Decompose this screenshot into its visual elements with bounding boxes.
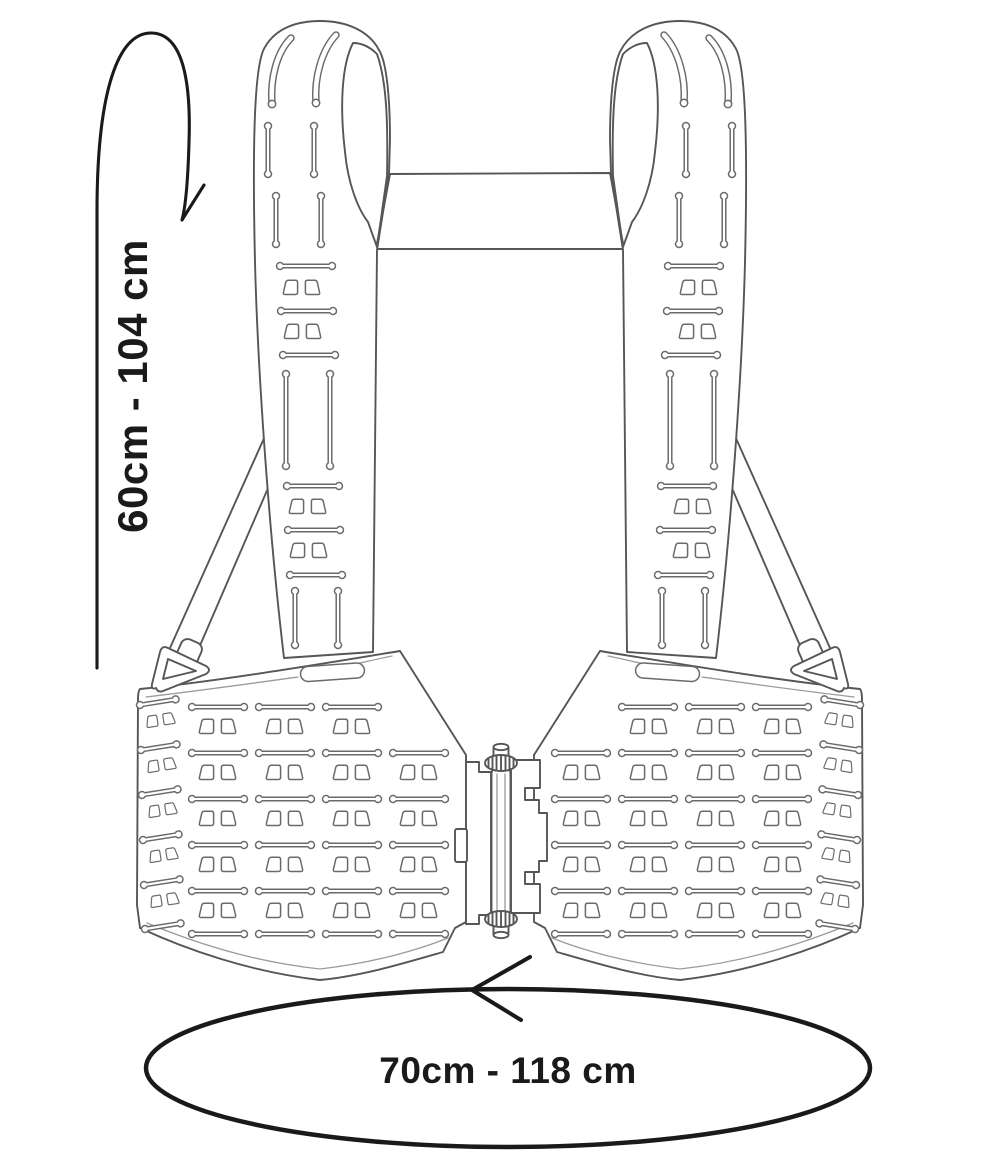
harness-right-half <box>534 21 864 980</box>
horizontal-dimension-label: 70cm - 118 cm <box>379 1050 636 1092</box>
back-yoke <box>349 173 652 249</box>
illustration-page: 60cm - 104 cm 70cm - 118 cm <box>0 0 1000 1160</box>
clip-top-knob <box>485 744 517 771</box>
clip-bottom-knob <box>485 911 517 938</box>
front-closure-clip <box>455 744 547 938</box>
harness-left-half <box>136 21 466 980</box>
chest-rig-diagram <box>0 0 1000 1160</box>
clip-shaft <box>492 769 511 918</box>
vertical-dimension-label: 60cm - 104 cm <box>109 239 157 533</box>
clip-left-plate <box>466 762 491 924</box>
clip-left-tab <box>455 829 467 862</box>
